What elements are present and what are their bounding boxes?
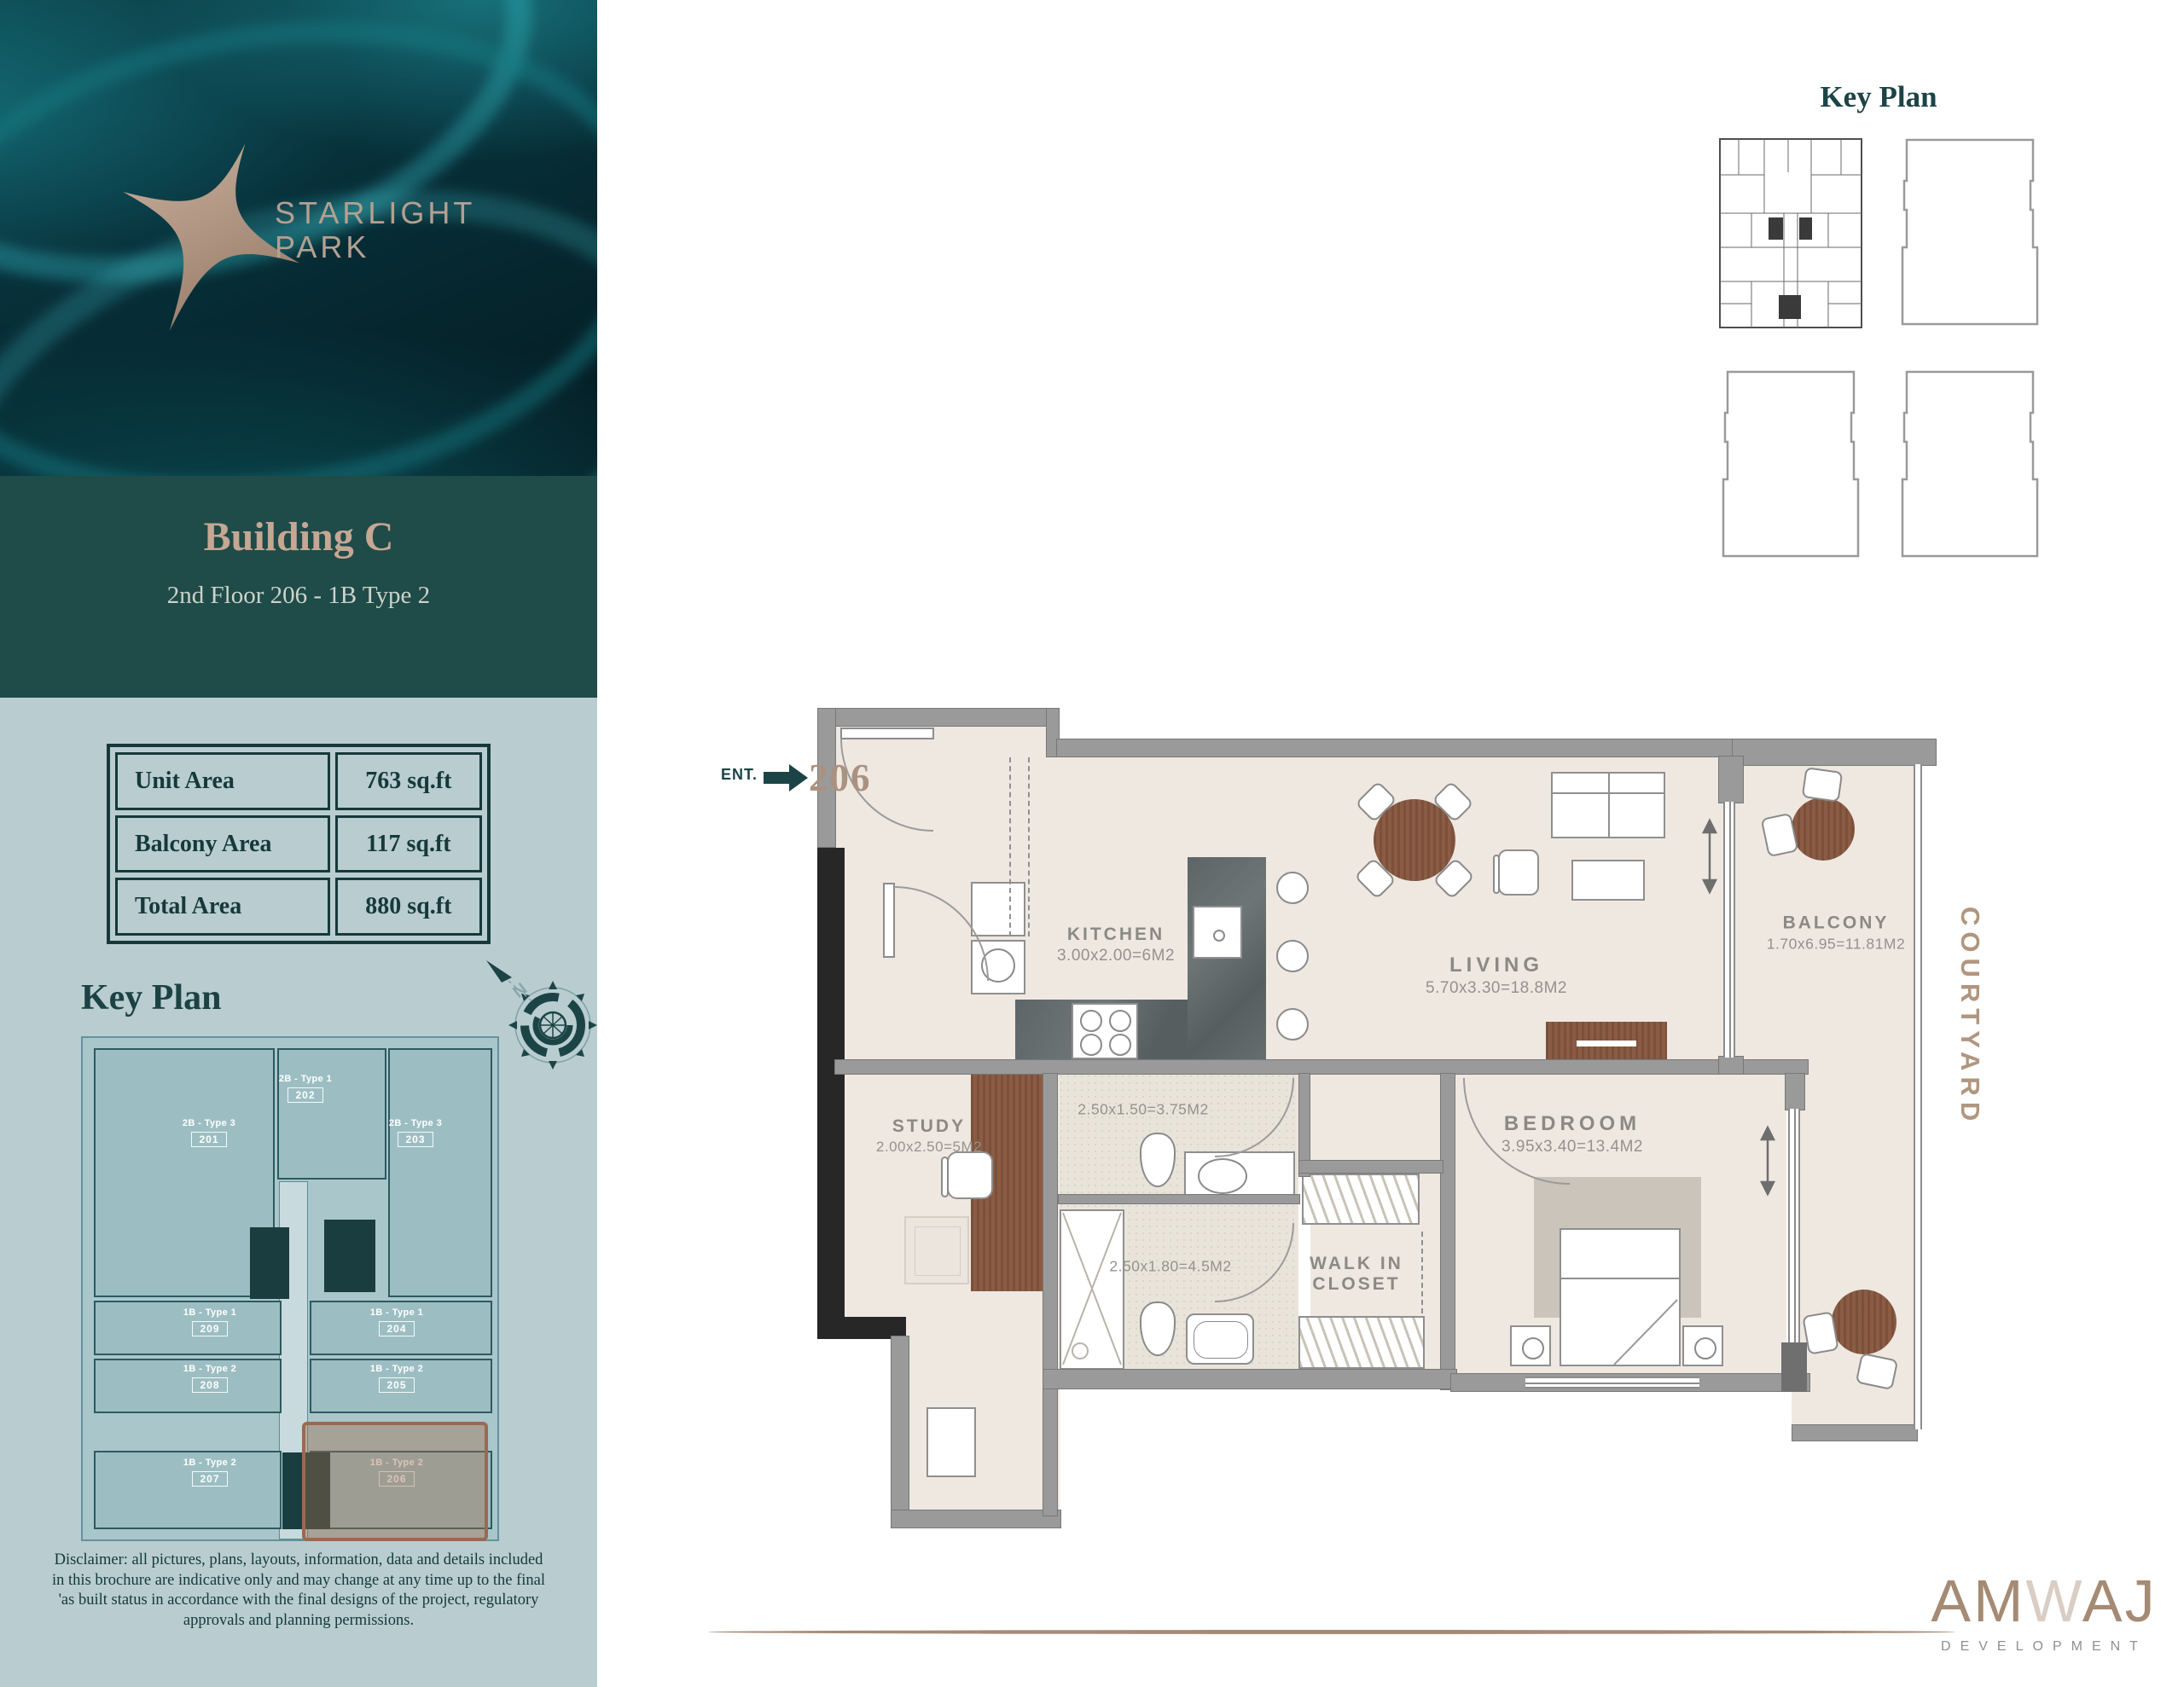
bathroom1-label: 2.50x1.50=3.75M2 [1077,1099,1208,1119]
bedroom-label: BEDROOM 3.95x3.40=13.4M2 [1501,1112,1643,1157]
developer-name: AMWAJ [1916,1571,2172,1631]
bathroom2-label: 2.50x1.80=4.5M2 [1109,1256,1231,1276]
entrance-arrow-icon [764,764,808,791]
living-label: LIVING 5.70x3.30=18.8M2 [1426,954,1567,998]
brochure-page: STARLIGHT PARK Building C 2nd Floor 206 … [0,0,2184,1687]
plan-overlay [0,0,2184,1687]
developer-tagline: DEVELOPMENT [1916,1639,2172,1655]
divider-line [708,1630,1955,1634]
courtyard-label: COURTYARD [1951,906,1985,1128]
study-label: STUDY 2.00x2.50=5M2 [876,1116,982,1156]
window-arrow-icon [1704,820,1774,1194]
shower-detail [1063,1213,1121,1365]
entrance-unit-number: 206 [809,756,872,800]
entrance-label: ENT. [721,766,758,784]
walk-in-closet-label: WALK IN CLOSET [1310,1254,1403,1295]
balcony-label: BALCONY 1.70x6.95=11.81M2 [1767,913,1905,954]
logo-w-glyph: W [2025,1568,2082,1634]
kitchen-label: KITCHEN 3.00x2.00=6M2 [1057,925,1175,965]
developer-logo: AMWAJ DEVELOPMENT [1916,1571,2172,1655]
